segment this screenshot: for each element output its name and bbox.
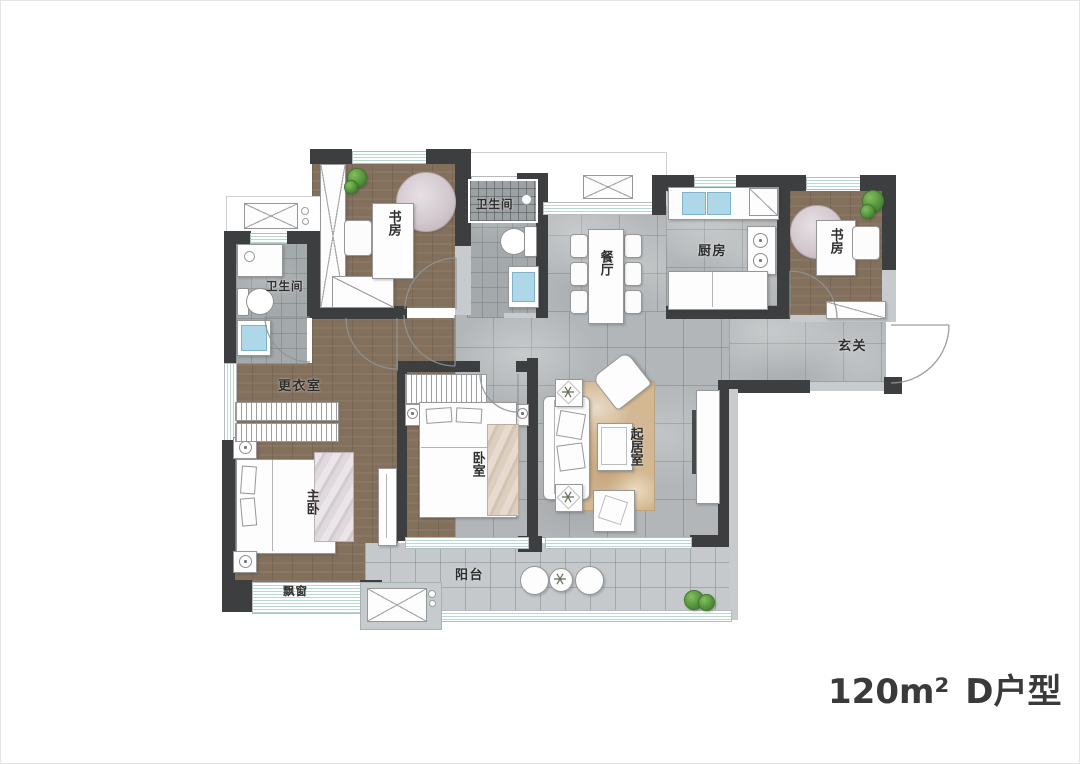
room-label-bath-left: 卫生间: [266, 280, 304, 294]
room-label-balcony: 阳台: [455, 568, 484, 584]
wall-bay-left: [222, 580, 252, 612]
balcony-pouf2: [575, 566, 604, 595]
platform-left-drain: [301, 207, 309, 215]
window-bath-left: [250, 233, 290, 244]
room-label-living: 起居室: [628, 427, 642, 466]
master-bed-seam: [272, 460, 273, 551]
stove-burner2: [753, 253, 768, 268]
study-left-chair: [344, 220, 372, 256]
room-label-master: 主卧: [304, 489, 318, 515]
plant-study-left2: [344, 180, 358, 194]
room-label-study-right: 书房: [828, 228, 842, 254]
plant-study-right2: [860, 204, 875, 219]
wall-balcony-right: [729, 389, 738, 620]
wall-segment: [884, 377, 902, 394]
room-label-dressing: 更衣室: [278, 379, 322, 395]
room-label-bay-window: 飘窗: [283, 585, 308, 599]
wall-living-corner: [690, 535, 729, 547]
balcony-pouf: [520, 566, 549, 595]
wall-segment: [790, 175, 806, 191]
bath-top-toilet-tank: [524, 226, 537, 257]
washer-knob: [428, 590, 436, 598]
wall-segment: [224, 231, 251, 244]
wall-bedroom-east: [527, 358, 538, 540]
plant-balcony2: [698, 594, 715, 611]
bath-left-showerhead: [244, 251, 255, 262]
balcony-rail: [437, 610, 732, 622]
bedroom-quilt: [487, 424, 519, 516]
wall-segment-light: [504, 313, 536, 318]
washer-knob2: [429, 600, 436, 607]
plan-area-label: 120m²: [828, 672, 949, 712]
window-study-left: [352, 151, 430, 164]
sofa-cushion2: [556, 442, 585, 471]
wall-study-right-east: [882, 175, 896, 270]
counter-seam: [712, 272, 713, 307]
room-label-foyer: 玄关: [838, 339, 867, 355]
balcony-door-living: [545, 537, 692, 549]
bedroom-lamp: [407, 408, 418, 419]
sofa-cushion: [556, 410, 586, 440]
wall-segment: [310, 149, 352, 164]
shoe-cabinet: [826, 301, 886, 319]
wall-segment-light: [455, 246, 471, 315]
dining-chair: [570, 290, 588, 314]
bath-left-shower: [237, 244, 283, 277]
coffee-table-inner: [601, 427, 627, 465]
platform-left-drain2: [302, 218, 309, 225]
entry-door-arc: [891, 325, 949, 383]
dining-chair: [624, 290, 642, 314]
room-label-study-left: 书房: [386, 210, 400, 236]
master-throw: [314, 452, 354, 542]
plan-type-label: D户型: [965, 672, 1061, 712]
washer: [367, 588, 427, 622]
dressing-rack2: [235, 423, 339, 442]
dining-table: [588, 229, 624, 324]
kitchen-counter-bottom: [668, 271, 768, 310]
stove-burner: [753, 233, 768, 248]
bath-top-sink: [512, 272, 535, 302]
room-label-bath-top: 卫生间: [476, 198, 514, 212]
floorplan-canvas: 书房 卫生间 卫生间 餐厅 厨房 书房 玄关 更衣室 主卧 卧室 起居室 阳台 …: [0, 0, 1080, 764]
plan-title: 120m²D户型: [828, 664, 1062, 713]
platform-top-hatch: [583, 175, 633, 199]
kitchen-sink2: [707, 192, 731, 215]
dining-chair: [624, 262, 642, 286]
bay-window-band: [252, 582, 364, 614]
room-label-bedroom: 卧室: [470, 451, 484, 477]
window-study-right: [806, 177, 864, 190]
dresser-handle: [386, 474, 387, 538]
master-dresser: [378, 468, 397, 546]
wall-segment-light: [810, 382, 886, 391]
dressing-rack: [235, 402, 339, 421]
kitchen-sink: [682, 192, 706, 215]
balcony-door-bedroom: [405, 537, 529, 549]
suite-corridor-floor: [312, 318, 455, 365]
master-pillow: [240, 466, 257, 495]
wall-segment: [652, 175, 666, 215]
bedroom-pillow2: [456, 407, 483, 423]
master-pillow2: [240, 497, 257, 526]
study-right-chair: [852, 226, 880, 260]
sofa-back-line: [554, 400, 555, 494]
platform-left-hatch: [244, 203, 298, 229]
wall-bath-left-east: [307, 231, 320, 318]
master-lamp: [239, 441, 252, 454]
tv-stand: [696, 390, 720, 504]
study-left-shelf: [332, 276, 394, 308]
room-label-kitchen: 厨房: [698, 244, 727, 260]
tv: [692, 410, 696, 474]
dining-chair: [570, 262, 588, 286]
room-label-dining: 餐厅: [598, 250, 612, 276]
wall-west-bath: [224, 244, 236, 364]
bath-left-sink: [241, 325, 267, 351]
wall-bedroom-top: [398, 361, 480, 372]
master-lamp2: [239, 555, 252, 568]
dining-chair: [624, 234, 642, 258]
bedroom-closet: [405, 374, 487, 404]
bedroom-lamp2: [517, 408, 528, 419]
bath-top-showerhead: [521, 194, 532, 205]
kitchen-fridge: [749, 188, 778, 216]
dining-chair: [570, 234, 588, 258]
balcony-plant-table: [549, 568, 573, 592]
window-dining: [543, 202, 655, 215]
bedroom-pillow: [426, 407, 453, 424]
